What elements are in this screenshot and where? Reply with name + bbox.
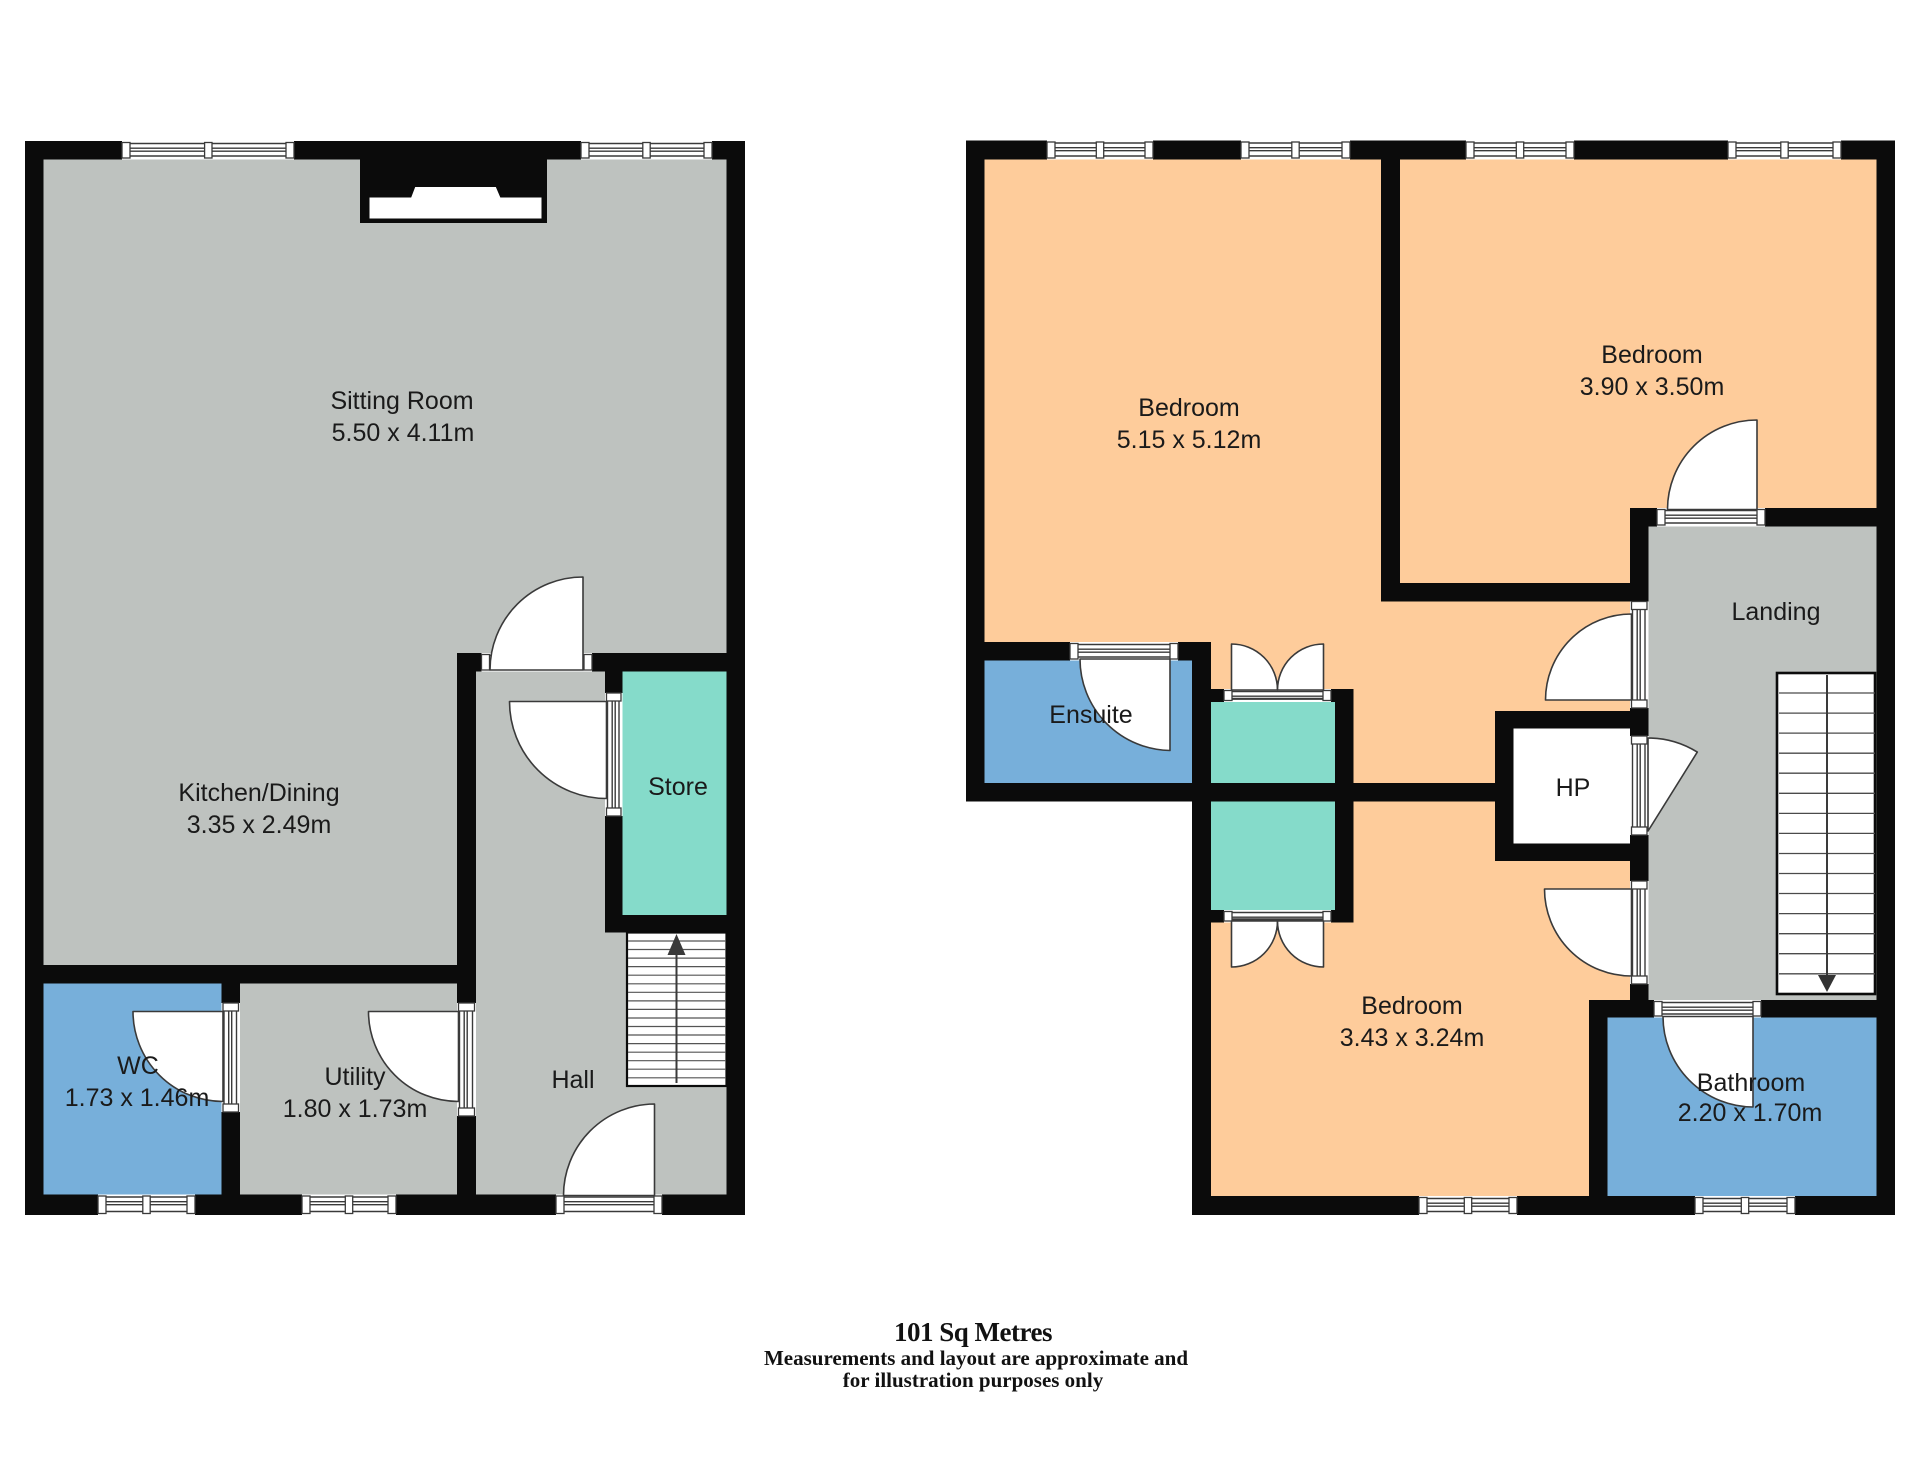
svg-text:5.50 x 4.11m: 5.50 x 4.11m — [332, 419, 475, 447]
svg-text:Bedroom: Bedroom — [1601, 341, 1702, 369]
svg-text:Ensuite: Ensuite — [1049, 701, 1132, 729]
svg-text:Kitchen/Dining: Kitchen/Dining — [178, 779, 339, 807]
svg-text:5.15 x 5.12m: 5.15 x 5.12m — [1117, 426, 1262, 454]
svg-text:Sitting Room: Sitting Room — [330, 387, 473, 415]
svg-text:Utility: Utility — [324, 1063, 386, 1091]
svg-text:WC: WC — [117, 1052, 159, 1080]
svg-text:for illustration purposes only: for illustration purposes only — [843, 1368, 1104, 1392]
svg-text:Landing: Landing — [1732, 598, 1821, 626]
svg-text:1.80 x 1.73m: 1.80 x 1.73m — [283, 1095, 428, 1123]
svg-text:Store: Store — [648, 773, 708, 801]
svg-text:1.73 x 1.46m: 1.73 x 1.46m — [65, 1084, 210, 1112]
svg-text:3.43 x 3.24m: 3.43 x 3.24m — [1340, 1024, 1485, 1052]
svg-text:Hall: Hall — [551, 1066, 594, 1094]
svg-text:Measurements and layout are ap: Measurements and layout are approximate … — [764, 1346, 1188, 1370]
svg-text:Bathroom: Bathroom — [1697, 1069, 1805, 1097]
svg-text:3.90 x 3.50m: 3.90 x 3.50m — [1580, 373, 1725, 401]
svg-text:Bedroom: Bedroom — [1138, 394, 1239, 422]
svg-text:2.20 x 1.70m: 2.20 x 1.70m — [1678, 1099, 1823, 1127]
svg-text:3.35 x 2.49m: 3.35 x 2.49m — [187, 811, 332, 839]
svg-text:101 Sq Metres: 101 Sq Metres — [894, 1317, 1052, 1347]
svg-text:Bedroom: Bedroom — [1361, 992, 1462, 1020]
svg-text:HP: HP — [1556, 774, 1591, 802]
